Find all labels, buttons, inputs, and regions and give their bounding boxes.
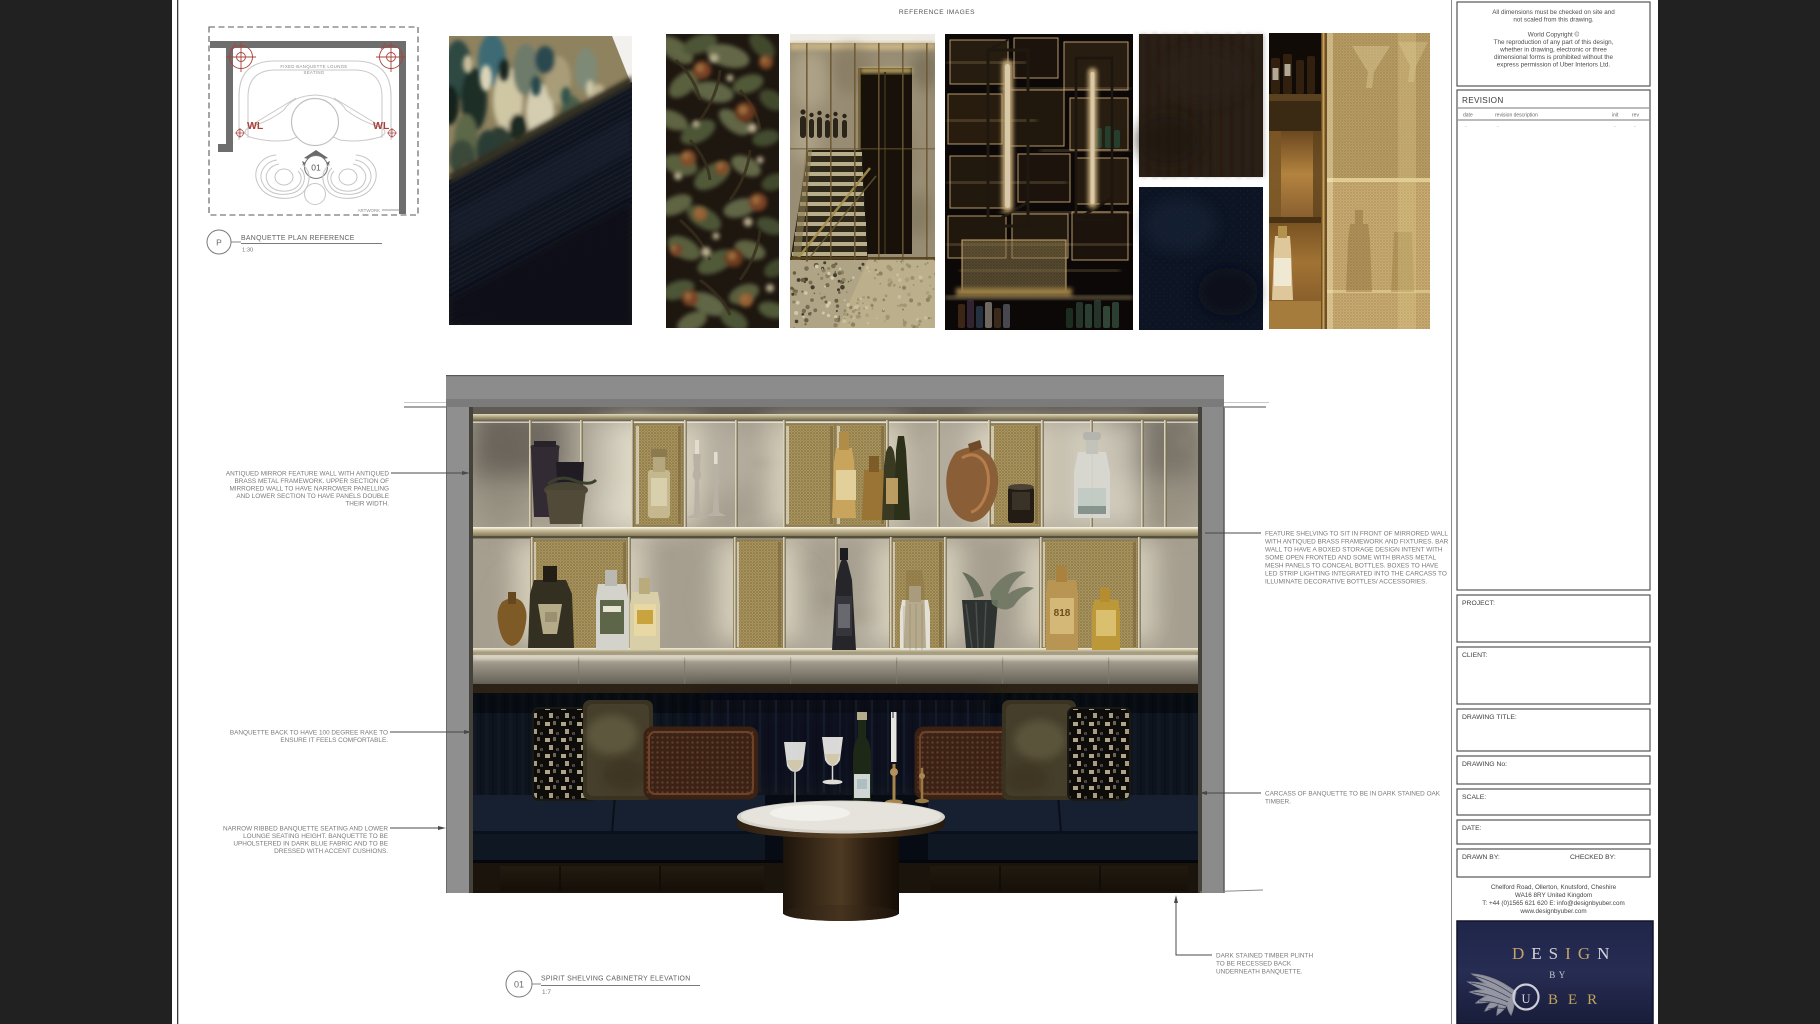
svg-text:U: U [1521,992,1530,1006]
svg-text:FIXED BANQUETTE LOUNGE: FIXED BANQUETTE LOUNGE [280,64,347,69]
svg-text:rev: rev [1632,113,1639,119]
svg-text:WL: WL [247,120,264,132]
svg-text:CHECKED BY:: CHECKED BY: [1570,854,1616,861]
svg-text:REFERENCE IMAGES: REFERENCE IMAGES [899,9,975,16]
svg-text:ARTWORK: ARTWORK [358,208,380,213]
svg-text:BY: BY [1549,970,1569,980]
svg-text:DRAWING TITLE:: DRAWING TITLE: [1462,714,1517,721]
svg-text:01: 01 [514,980,524,990]
svg-text:CLIENT:: CLIENT: [1462,652,1487,659]
svg-text:SCALE:: SCALE: [1462,794,1486,801]
svg-text:date: date [1463,113,1473,119]
svg-text:init: init [1612,113,1619,119]
svg-text:SEATING: SEATING [303,70,324,75]
svg-text:P: P [216,238,222,248]
svg-text:SPIRIT SHELVING CABINETRY ELEV: SPIRIT SHELVING CABINETRY ELEVATION [541,976,691,983]
svg-text:revision description: revision description [1495,113,1538,119]
svg-text:FEATURE SHELVING TO SIT IN FRO: FEATURE SHELVING TO SIT IN FRONT OF MIRR… [1265,531,1449,586]
svg-text:DATE:: DATE: [1462,825,1482,832]
svg-text:DRAWING No:: DRAWING No: [1462,761,1507,768]
svg-text:DESIGN: DESIGN [1512,944,1616,963]
svg-text:REVISION: REVISION [1462,96,1504,105]
svg-text:DRAWN BY:: DRAWN BY: [1462,854,1500,861]
svg-text:BER: BER [1548,992,1607,1008]
svg-text:01: 01 [311,163,321,173]
svg-text:1:7: 1:7 [542,989,551,996]
svg-text:PROJECT:: PROJECT: [1462,600,1495,607]
svg-text:1:30: 1:30 [242,248,253,254]
svg-text:WL: WL [373,120,390,132]
svg-text:818: 818 [1054,608,1071,619]
svg-text:BANQUETTE PLAN REFERENCE: BANQUETTE PLAN REFERENCE [241,235,355,242]
